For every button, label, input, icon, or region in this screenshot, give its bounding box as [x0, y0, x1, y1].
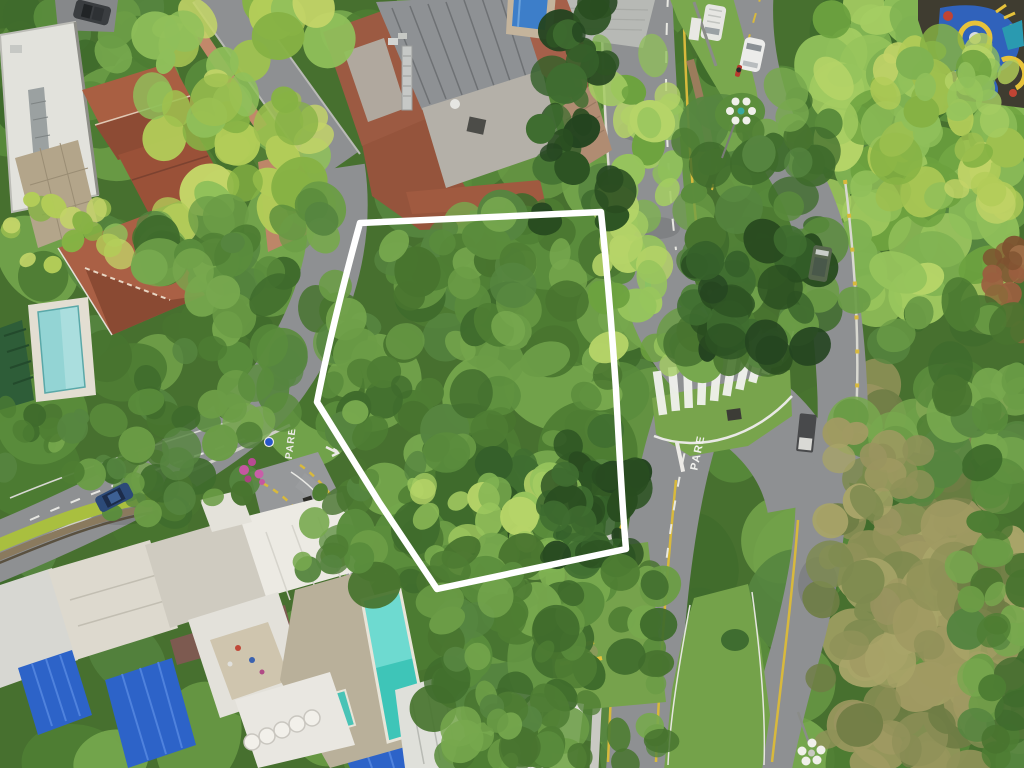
aerial-photo: PARE PARE [0, 0, 1024, 768]
aerial-photo-canvas: PARE PARE [0, 0, 1024, 768]
round-road-sign [265, 438, 274, 447]
island-sign [726, 408, 741, 421]
